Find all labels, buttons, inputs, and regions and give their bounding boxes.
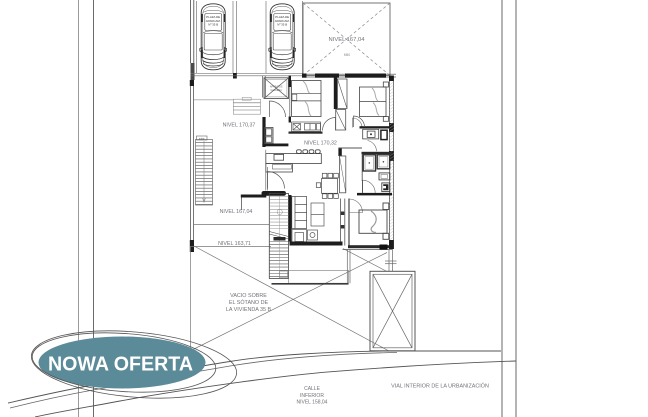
svg-text:CALLE: CALLE [304, 386, 321, 392]
svg-text:LA VIVIENDA 35 B: LA VIVIENDA 35 B [226, 307, 272, 313]
svg-text:NIVEL 167,04: NIVEL 167,04 [220, 209, 253, 215]
svg-text:VACIO SOBRE: VACIO SOBRE [230, 293, 267, 299]
svg-text:NIVEL 163,71: NIVEL 163,71 [218, 241, 251, 247]
svg-text:NIVEL 167,04: NIVEL 167,04 [329, 37, 366, 43]
svg-text:INFERIOR: INFERIOR [300, 393, 324, 399]
svg-text:EL SÓTANO DE: EL SÓTANO DE [229, 299, 269, 306]
svg-text:NIVEL 158,04: NIVEL 158,04 [297, 400, 328, 406]
svg-text:CALDERA: CALDERA [271, 89, 283, 92]
svg-text:M50: M50 [344, 53, 350, 57]
svg-text:NIVEL 170,32: NIVEL 170,32 [304, 141, 337, 147]
svg-text:NOWA OFERTA: NOWA OFERTA [48, 353, 193, 376]
svg-text:NIVEL 170,37: NIVEL 170,37 [223, 123, 256, 129]
svg-text:VIAL INTERIOR DE LA URBANIZACI: VIAL INTERIOR DE LA URBANIZACIÓN [391, 383, 489, 390]
svg-text:sube: sube [199, 136, 205, 140]
